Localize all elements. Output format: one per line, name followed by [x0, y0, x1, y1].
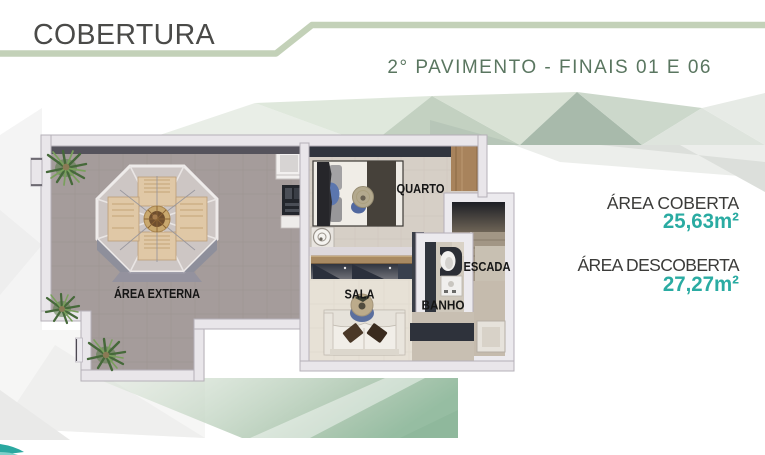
svg-text:ÁREA EXTERNA: ÁREA EXTERNA	[114, 286, 201, 301]
svg-text:BANHO: BANHO	[422, 298, 465, 313]
svg-text:QUARTO: QUARTO	[397, 181, 445, 196]
svg-text:SALA: SALA	[345, 287, 376, 302]
